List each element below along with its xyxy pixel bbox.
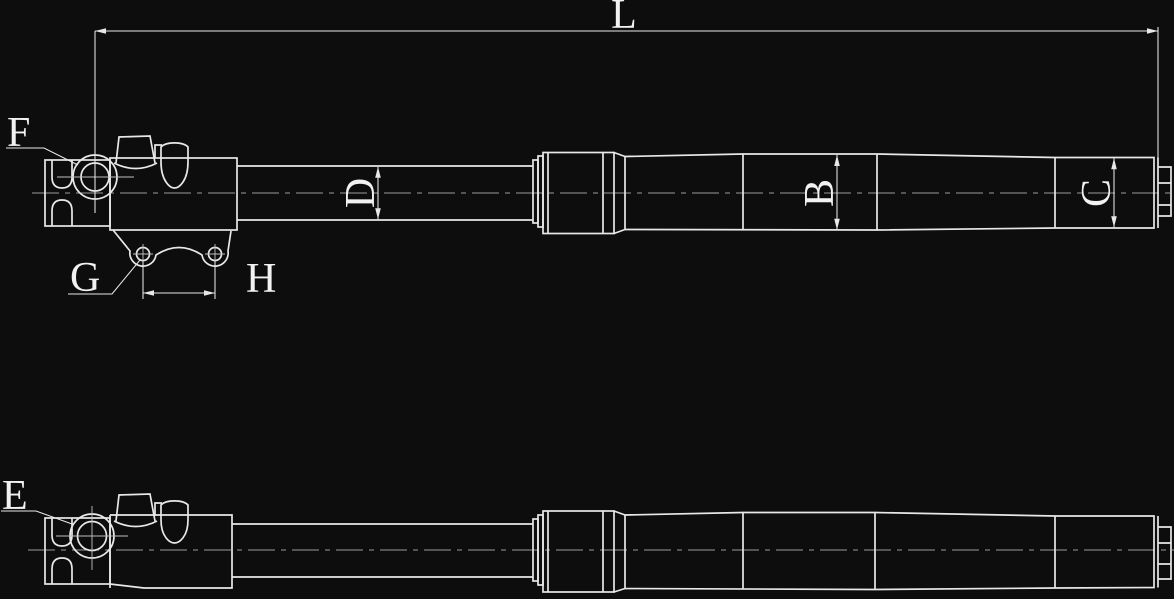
clamp-lug-side: [161, 501, 188, 543]
cylinder-taper-side: [614, 511, 625, 592]
end-stud-side: [1158, 527, 1171, 579]
clamp-arc-side: [114, 521, 157, 527]
label-F: F: [7, 110, 30, 156]
bottom-head: [45, 494, 232, 588]
callout-E: E: [1, 473, 72, 524]
cylinder-inner-lines-side: [548, 511, 603, 592]
dim-hole-spacing: H: [143, 256, 276, 302]
end-stud: [1158, 167, 1171, 216]
clamp-lug: [161, 143, 188, 188]
label-B: B: [797, 179, 843, 207]
dim-overall-length: L: [95, 0, 1158, 213]
top-head: [45, 136, 237, 230]
label-G: G: [70, 255, 100, 301]
bottom-outer-tube: [625, 513, 1171, 590]
drawing-canvas: L D B C H F G: [0, 0, 1174, 599]
tube-section-lines-side: [743, 513, 1158, 590]
clamp-trapezoid: [116, 136, 155, 163]
label-E: E: [2, 473, 28, 519]
shock-absorber-technical-drawing: L D B C H F G: [0, 0, 1174, 599]
head-boss-lower: [52, 200, 72, 226]
head-boss-upper: [52, 160, 72, 188]
label-D: D: [338, 178, 384, 208]
head-boss-lower-side: [52, 558, 72, 584]
bottom-view: E: [1, 473, 1174, 592]
top-seal-collar: [533, 156, 543, 227]
label-L: L: [611, 0, 637, 38]
top-view: L D B C H F G: [6, 0, 1174, 302]
clamp-arc: [114, 163, 157, 169]
callout-F: F: [6, 110, 78, 165]
dim-end-cap-diameter: C: [1074, 158, 1120, 227]
bottom-cylinder: [543, 511, 625, 592]
dim-tube-diameter: B: [797, 155, 843, 230]
clamp-trapezoid-side: [116, 494, 155, 521]
label-H: H: [246, 256, 276, 302]
tube-outline-side: [625, 513, 1154, 590]
top-bracket: [113, 230, 231, 266]
dim-rod-diameter: D: [338, 167, 384, 220]
head-left-block-side: [45, 518, 110, 584]
label-C: C: [1074, 179, 1120, 207]
head-boss-upper-side: [52, 518, 72, 546]
callout-G: G: [68, 255, 140, 301]
